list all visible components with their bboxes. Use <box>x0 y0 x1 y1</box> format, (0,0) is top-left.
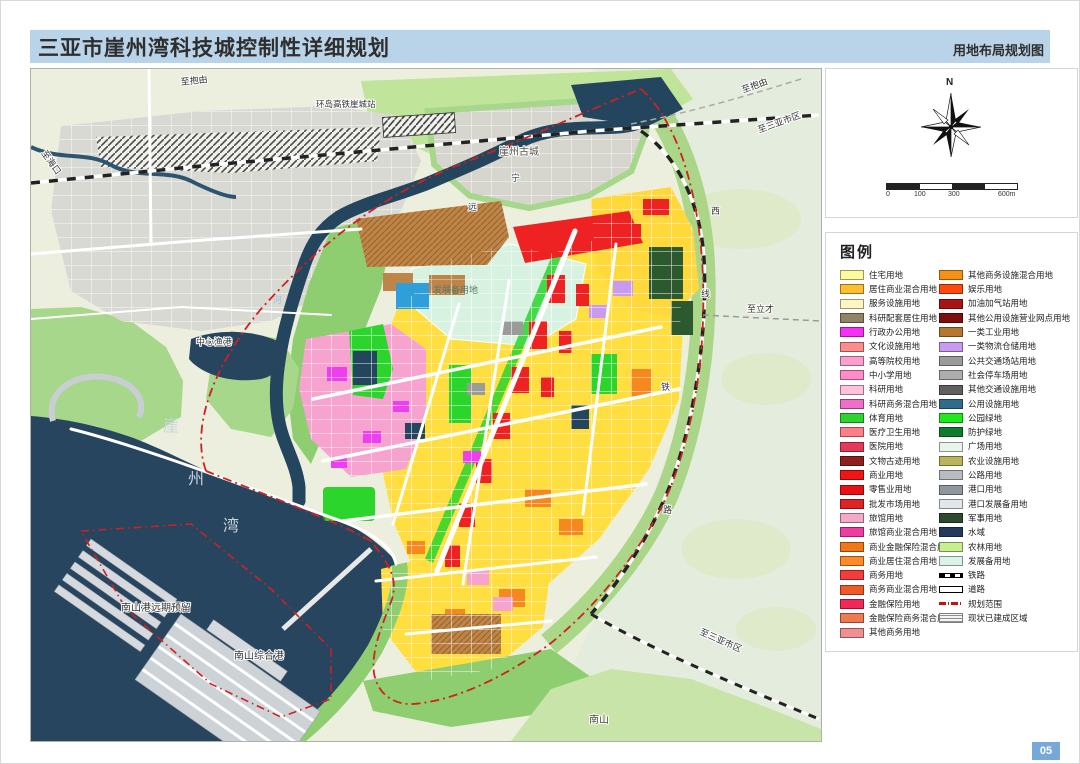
map-label-nanshan: 南山 <box>589 713 609 726</box>
legend-item: 加油加气站用地 <box>939 297 1075 311</box>
legend-item: 社会停车场用地 <box>939 368 1075 382</box>
map-label-to-licai: 至立才 <box>747 303 774 314</box>
legend-label: 商务商业混合用地 <box>869 585 937 594</box>
legend-label: 防护绿地 <box>968 428 1002 437</box>
legend-item: 农林用地 <box>939 540 1075 554</box>
legend-label: 科研配套居住用地 <box>869 314 937 323</box>
legend-item: 其他商务设施混合用地 <box>939 268 1075 282</box>
legend-label: 其他商务用地 <box>869 628 920 637</box>
legend-swatch <box>939 427 963 437</box>
legend-swatch <box>840 327 864 337</box>
legend-label: 一类物流仓储用地 <box>968 342 1036 351</box>
legend-swatch <box>939 456 963 466</box>
map-label-nanshan-comprehensive-port: 南山综合港 <box>234 649 284 662</box>
legend-item: 中小学用地 <box>840 368 938 382</box>
legend-swatch <box>939 499 963 509</box>
map-label-station: 环岛高铁崖城站 <box>316 99 376 109</box>
legend-item: 一类物流仓储用地 <box>939 339 1075 353</box>
legend-item: 文物古迹用地 <box>840 454 938 468</box>
legend-item: 军事用地 <box>939 511 1075 525</box>
legend-label: 科研用地 <box>869 385 903 394</box>
compass-rose-icon <box>911 85 991 165</box>
legend-label: 住宅用地 <box>869 271 903 280</box>
map-label-nanshan-port-reserve: 南山港远期预留 <box>121 601 191 614</box>
legend-label: 医疗卫生用地 <box>869 428 920 437</box>
legend-label: 中小学用地 <box>869 371 912 380</box>
map-label-rail-char-0: 西 <box>711 206 720 216</box>
legend-label: 公路用地 <box>968 471 1002 480</box>
legend-swatch <box>840 628 864 638</box>
legend-item: 商务商业混合用地 <box>840 583 938 597</box>
legend-swatch <box>840 570 864 580</box>
map-label-river-char-1: 远 <box>468 202 477 212</box>
legend-swatch <box>939 442 963 452</box>
legend-swatch <box>840 485 864 495</box>
map-label-reserve: 发展备用地 <box>433 284 478 295</box>
legend-label: 高等院校用地 <box>869 357 920 366</box>
legend-item: 商业金融保险混合用地 <box>840 540 938 554</box>
legend-label: 公园绿地 <box>968 414 1002 423</box>
legend-item: 行政办公用地 <box>840 325 938 339</box>
legend-swatch <box>840 427 864 437</box>
legend-item: 商业居住混合用地 <box>840 554 938 568</box>
legend-swatch <box>840 456 864 466</box>
legend-swatch <box>840 284 864 294</box>
legend-swatch <box>840 399 864 409</box>
legend-label: 社会停车场用地 <box>968 371 1028 380</box>
legend-item: 公用设施用地 <box>939 397 1075 411</box>
legend-swatch <box>939 327 963 337</box>
legend-label: 铁路 <box>968 571 985 580</box>
legend-label: 商业用地 <box>869 471 903 480</box>
legend-swatch <box>939 370 963 380</box>
legend-item: 道路 <box>939 583 1075 597</box>
legend-item: 科研用地 <box>840 382 938 396</box>
legend-item: 科研配套居住用地 <box>840 311 938 325</box>
legend-item: 公共交通场站用地 <box>939 354 1075 368</box>
legend-label: 广场用地 <box>968 442 1002 451</box>
legend-label: 商业居住混合用地 <box>869 557 937 566</box>
map-label-river-char-2: 河 <box>273 294 282 305</box>
legend-item: 广场用地 <box>939 440 1075 454</box>
legend-item: 其他公用设施营业网点用地 <box>939 311 1075 325</box>
legend-item: 医院用地 <box>840 440 938 454</box>
legend-swatch <box>939 342 963 352</box>
legend-label: 现状已建成区域 <box>968 614 1028 623</box>
map-label-bay-char-2: 湾 <box>223 517 239 535</box>
legend-swatch <box>840 413 864 423</box>
legend-item: 公园绿地 <box>939 411 1075 425</box>
legend-label: 旅馆商业混合用地 <box>869 528 937 537</box>
scale-tick-3: 600m <box>998 191 1016 198</box>
scale-tick-1: 100 <box>914 191 926 198</box>
legend-item: 现状已建成区域 <box>939 611 1075 625</box>
legend-item: 商务用地 <box>840 568 938 582</box>
legend-label: 道路 <box>968 585 985 594</box>
compass-panel: N 0 100 300 600m <box>825 68 1078 218</box>
map-label-bay-char-1: 州 <box>188 471 204 488</box>
scale-tick-0: 0 <box>886 191 890 198</box>
legend-label: 商务用地 <box>869 571 903 580</box>
legend-swatch <box>840 613 864 623</box>
legend-swatch <box>939 556 963 566</box>
legend-swatch <box>840 342 864 352</box>
legend-item: 医疗卫生用地 <box>840 425 938 439</box>
legend-title: 图例 <box>840 241 874 262</box>
legend-swatch <box>939 313 963 323</box>
legend-swatch <box>840 599 864 609</box>
legend-label: 旅馆用地 <box>869 514 903 523</box>
legend-item: 港口发展备用地 <box>939 497 1075 511</box>
legend-swatch <box>840 442 864 452</box>
legend-swatch <box>939 586 963 593</box>
legend-panel: 图例 住宅用地居住商业混合用地服务设施用地科研配套居住用地行政办公用地文化设施用… <box>825 232 1078 652</box>
map-label-old-town: 崖州古城 <box>499 145 539 158</box>
legend-label: 公共交通场站用地 <box>968 357 1036 366</box>
legend-swatch <box>939 270 963 280</box>
legend-item: 商业用地 <box>840 468 938 482</box>
legend-item: 其他商务用地 <box>840 625 938 639</box>
legend-item: 零售业用地 <box>840 482 938 496</box>
legend-label: 居住商业混合用地 <box>869 285 937 294</box>
legend-item: 发展备用地 <box>939 554 1075 568</box>
legend-label: 文物古迹用地 <box>869 457 920 466</box>
legend-label: 农业设施用地 <box>968 457 1019 466</box>
legend-label: 规划范围 <box>968 600 1002 609</box>
legend-item: 居住商业混合用地 <box>840 282 938 296</box>
legend-label: 文化设施用地 <box>869 342 920 351</box>
legend-swatch <box>939 573 963 578</box>
legend-item: 一类工业用地 <box>939 325 1075 339</box>
legend-swatch <box>939 385 963 395</box>
scale-tick-2: 300 <box>948 191 960 198</box>
legend-label: 其他商务设施混合用地 <box>968 271 1053 280</box>
legend-swatch <box>840 470 864 480</box>
legend-item: 娱乐用地 <box>939 282 1075 296</box>
legend-item: 规划范围 <box>939 597 1075 611</box>
legend-label: 其他公用设施营业网点用地 <box>968 314 1070 323</box>
legend-swatch <box>840 385 864 395</box>
legend-swatch <box>939 485 963 495</box>
planning-map: 至抱由 至海口 环岛高铁崖城站 崖州古城 至抱由 至三亚市区 宁 远 河 西 线… <box>30 68 822 742</box>
legend-item: 批发市场用地 <box>840 497 938 511</box>
legend-swatch <box>939 399 963 409</box>
page-number-badge: 05 <box>1032 742 1060 760</box>
legend-item: 水域 <box>939 525 1075 539</box>
legend-swatch <box>840 370 864 380</box>
legend-swatch <box>939 613 963 623</box>
legend-swatch <box>840 270 864 280</box>
legend-swatch <box>840 356 864 366</box>
legend-item: 铁路 <box>939 568 1075 582</box>
legend-swatch <box>939 356 963 366</box>
legend-label: 港口用地 <box>968 485 1002 494</box>
map-canvas: 至抱由 至海口 环岛高铁崖城站 崖州古城 至抱由 至三亚市区 宁 远 河 西 线… <box>31 69 821 741</box>
legend-item: 其他交通设施用地 <box>939 382 1075 396</box>
legend-swatch <box>840 499 864 509</box>
legend-swatch <box>840 556 864 566</box>
legend-label: 军事用地 <box>968 514 1002 523</box>
legend-swatch <box>939 527 963 537</box>
legend-swatch <box>939 284 963 294</box>
legend-label: 零售业用地 <box>869 485 912 494</box>
legend-item: 港口用地 <box>939 482 1075 496</box>
legend-item: 公路用地 <box>939 468 1075 482</box>
legend-right-column: 其他商务设施混合用地娱乐用地加油加气站用地其他公用设施营业网点用地一类工业用地一… <box>939 268 1075 625</box>
legend-item: 体育用地 <box>840 411 938 425</box>
legend-item: 科研商务混合用地 <box>840 397 938 411</box>
legend-item: 旅馆商业混合用地 <box>840 525 938 539</box>
map-label-rail-char-1: 线 <box>701 288 710 299</box>
legend-item: 服务设施用地 <box>840 297 938 311</box>
legend-label: 医院用地 <box>869 442 903 451</box>
legend-swatch <box>840 542 864 552</box>
map-label-bay-char-0: 崖 <box>163 417 179 435</box>
map-label-river-char-0: 宁 <box>511 172 520 183</box>
legend-swatch <box>939 413 963 423</box>
scale-bar: 0 100 300 600m <box>886 177 1026 203</box>
legend-swatch <box>840 585 864 595</box>
legend-label: 服务设施用地 <box>869 299 920 308</box>
legend-item: 金融保险用地 <box>840 597 938 611</box>
legend-item: 高等院校用地 <box>840 354 938 368</box>
legend-label: 娱乐用地 <box>968 285 1002 294</box>
legend-label: 发展备用地 <box>968 557 1011 566</box>
legend-label: 公用设施用地 <box>968 400 1019 409</box>
legend-item: 文化设施用地 <box>840 339 938 353</box>
legend-label: 农林用地 <box>968 543 1002 552</box>
legend-swatch <box>840 299 864 309</box>
legend-label: 行政办公用地 <box>869 328 920 337</box>
legend-item: 旅馆用地 <box>840 511 938 525</box>
legend-swatch <box>840 513 864 523</box>
map-label-rail-char-3: 路 <box>663 504 672 515</box>
legend-label: 一类工业用地 <box>968 328 1019 337</box>
legend-label: 加油加气站用地 <box>968 299 1028 308</box>
legend-swatch <box>939 602 963 605</box>
header-bar: 三亚市崖州湾科技城控制性详细规划 用地布局规划图 <box>30 30 1050 63</box>
legend-label: 金融保险用地 <box>869 600 920 609</box>
legend-swatch <box>939 470 963 480</box>
legend-label: 科研商务混合用地 <box>869 400 937 409</box>
legend-label: 水域 <box>968 528 985 537</box>
legend-label: 体育用地 <box>869 414 903 423</box>
legend-label: 港口发展备用地 <box>968 500 1028 509</box>
page-title: 三亚市崖州湾科技城控制性详细规划 <box>38 32 390 62</box>
legend-swatch <box>840 527 864 537</box>
legend-left-column: 住宅用地居住商业混合用地服务设施用地科研配套居住用地行政办公用地文化设施用地高等… <box>840 268 938 640</box>
legend-swatch <box>939 513 963 523</box>
map-label-rail-char-2: 铁 <box>661 381 670 392</box>
legend-item: 住宅用地 <box>840 268 938 282</box>
map-label-fishing-port: 中心渔港 <box>196 336 232 347</box>
legend-swatch <box>840 313 864 323</box>
legend-swatch <box>939 299 963 309</box>
legend-label: 批发市场用地 <box>869 500 920 509</box>
legend-label: 其他交通设施用地 <box>968 385 1036 394</box>
legend-swatch <box>939 542 963 552</box>
legend-item: 防护绿地 <box>939 425 1075 439</box>
legend-item: 农业设施用地 <box>939 454 1075 468</box>
legend-item: 金融保险商务混合用地 <box>840 611 938 625</box>
page-subtitle: 用地布局规划图 <box>953 40 1044 63</box>
